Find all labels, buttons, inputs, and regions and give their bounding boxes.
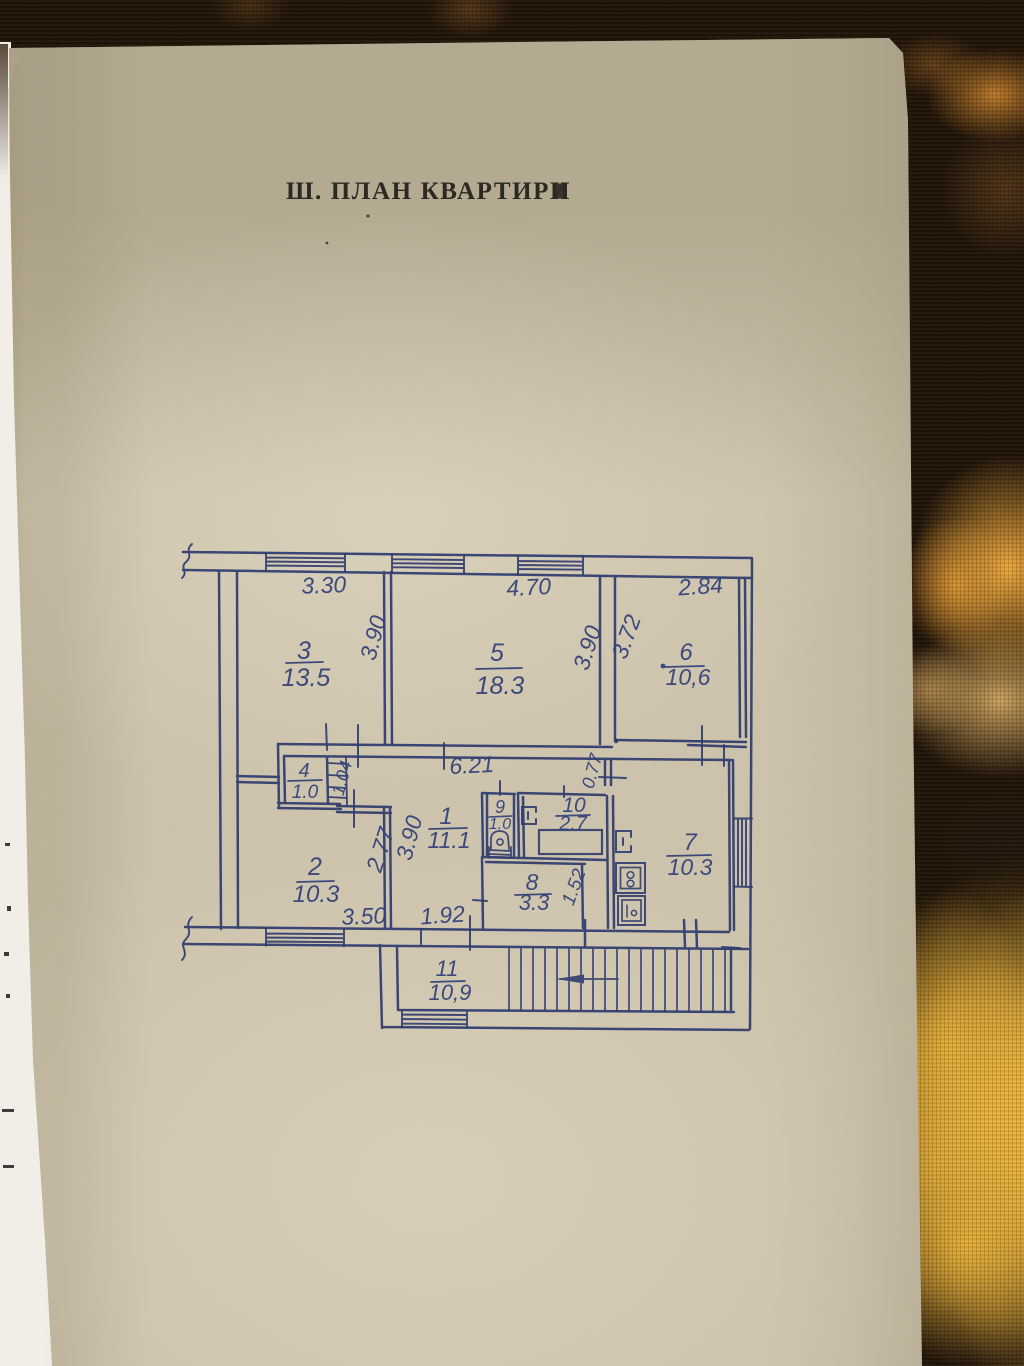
svg-text:10,9: 10,9 [429, 980, 472, 1005]
svg-text:3.90: 3.90 [355, 613, 392, 663]
svg-text:3.3: 3.3 [519, 890, 550, 915]
svg-text:1.0: 1.0 [292, 782, 319, 803]
svg-text:6: 6 [679, 639, 693, 666]
svg-text:2.84: 2.84 [676, 571, 723, 600]
svg-text:2: 2 [307, 853, 322, 881]
svg-text:10,6: 10,6 [666, 664, 711, 690]
svg-text:10.3: 10.3 [293, 881, 340, 908]
svg-text:5: 5 [490, 639, 504, 667]
svg-text:11: 11 [436, 956, 459, 981]
svg-text:1.04: 1.04 [328, 758, 356, 797]
svg-text:6.21: 6.21 [449, 751, 495, 779]
svg-text:0.77: 0.77 [578, 751, 607, 791]
svg-text:1.92: 1.92 [419, 900, 466, 929]
svg-text:10.3: 10.3 [668, 854, 713, 880]
svg-text:1: 1 [439, 803, 452, 830]
svg-text:7: 7 [683, 829, 698, 856]
svg-text:3.72: 3.72 [606, 611, 646, 662]
svg-text:1.52: 1.52 [558, 866, 591, 908]
svg-text:3.30: 3.30 [301, 571, 347, 599]
svg-text:13.5: 13.5 [282, 664, 331, 692]
svg-text:1.0: 1.0 [489, 816, 511, 833]
svg-text:3: 3 [297, 637, 311, 665]
svg-text:4.70: 4.70 [506, 573, 552, 601]
svg-text:11.1: 11.1 [427, 827, 470, 853]
svg-text:Ш. ПЛАН КВАРТИРИ: Ш. ПЛАН КВАРТИРИ [286, 178, 571, 205]
svg-text:3.50: 3.50 [341, 902, 387, 930]
svg-text:18.3: 18.3 [476, 672, 525, 700]
svg-text:2.7: 2.7 [558, 813, 588, 835]
svg-text:4: 4 [298, 760, 309, 782]
svg-text:9: 9 [495, 797, 505, 817]
